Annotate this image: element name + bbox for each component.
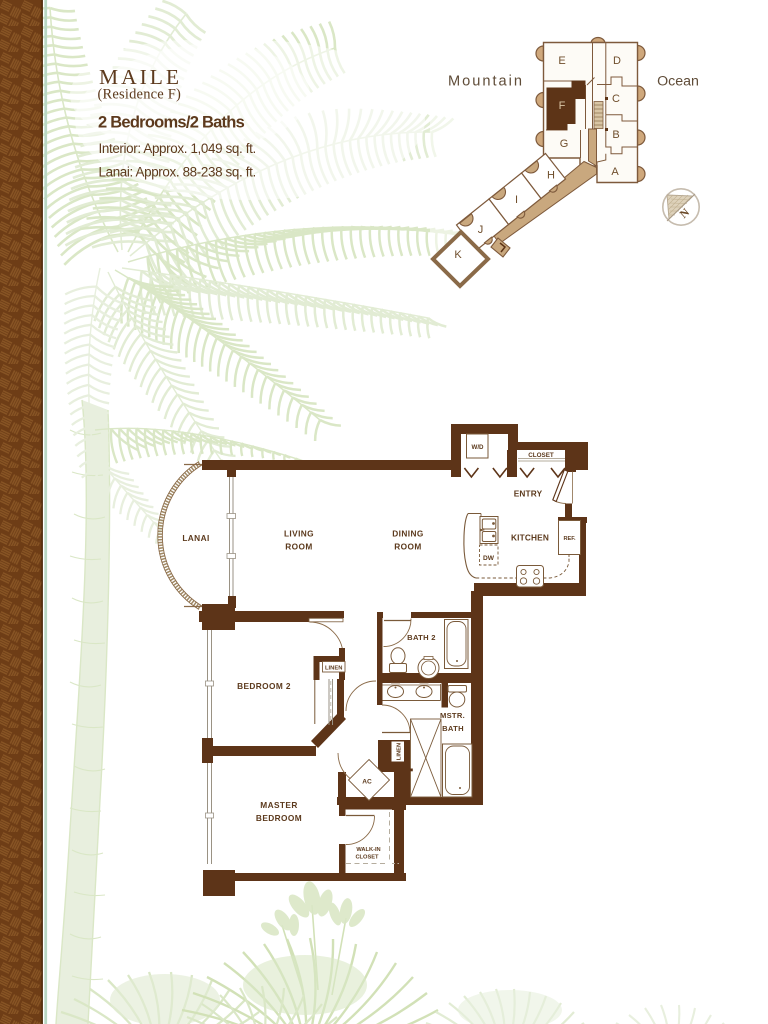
svg-text:2 Bedrooms/2 Baths: 2 Bedrooms/2 Baths xyxy=(98,114,245,132)
svg-text:BATH: BATH xyxy=(442,724,464,733)
svg-text:I: I xyxy=(515,194,518,206)
svg-text:H: H xyxy=(547,170,555,182)
svg-text:Interior: Approx. 1,049 sq. ft: Interior: Approx. 1,049 sq. ft. xyxy=(99,141,256,156)
svg-text:E: E xyxy=(558,55,565,67)
svg-text:REF.: REF. xyxy=(563,536,576,542)
svg-text:LINEN: LINEN xyxy=(325,666,342,672)
svg-text:(Residence F): (Residence F) xyxy=(98,87,182,103)
svg-text:C: C xyxy=(612,93,620,105)
svg-text:AC: AC xyxy=(362,779,372,786)
svg-text:KITCHEN: KITCHEN xyxy=(511,533,549,543)
svg-text:Ocean: Ocean xyxy=(657,74,699,90)
svg-text:CLOSET: CLOSET xyxy=(355,855,379,861)
svg-text:CLOSET: CLOSET xyxy=(528,452,554,459)
svg-text:LINEN: LINEN xyxy=(397,743,403,760)
svg-text:J: J xyxy=(478,224,484,236)
svg-text:ENTRY: ENTRY xyxy=(514,489,543,499)
svg-text:DW: DW xyxy=(483,555,495,562)
svg-text:BEDROOM: BEDROOM xyxy=(256,813,302,823)
svg-text:Mountain: Mountain xyxy=(448,74,524,90)
svg-text:MSTR.: MSTR. xyxy=(440,711,465,720)
svg-text:WALK-IN: WALK-IN xyxy=(356,847,380,853)
svg-text:ROOM: ROOM xyxy=(285,542,312,552)
svg-text:A: A xyxy=(611,166,619,178)
svg-text:LIVING: LIVING xyxy=(284,529,314,539)
svg-text:BATH 2: BATH 2 xyxy=(407,633,436,642)
svg-text:W/D: W/D xyxy=(471,444,484,451)
svg-text:B: B xyxy=(612,129,619,141)
svg-text:D: D xyxy=(613,55,621,67)
svg-text:MASTER: MASTER xyxy=(260,800,297,810)
svg-text:ROOM: ROOM xyxy=(394,542,421,552)
svg-text:Lanai: Approx. 88-238 sq. ft.: Lanai: Approx. 88-238 sq. ft. xyxy=(99,165,256,180)
svg-text:BEDROOM 2: BEDROOM 2 xyxy=(237,681,291,691)
svg-text:MAILE: MAILE xyxy=(99,65,182,89)
svg-text:F: F xyxy=(559,100,566,112)
svg-text:G: G xyxy=(560,138,569,150)
svg-text:LANAI: LANAI xyxy=(182,533,209,543)
svg-text:K: K xyxy=(454,249,462,261)
svg-text:DINING: DINING xyxy=(392,529,423,539)
